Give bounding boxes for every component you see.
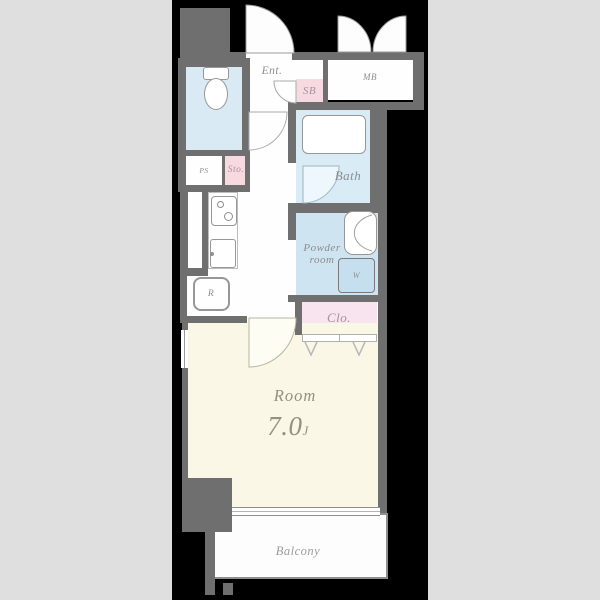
room-label: Room — [263, 386, 327, 406]
balcony-label: Balcony — [268, 543, 328, 559]
left-window — [181, 330, 188, 368]
closet-door-track — [302, 334, 377, 342]
stove-icon — [211, 196, 237, 226]
toilet-bowl-icon — [204, 78, 228, 110]
closet-label: Clo. — [315, 310, 363, 326]
bathtub-icon — [302, 115, 366, 154]
bath-label: Bath — [326, 168, 370, 184]
kitchen-sink-icon — [210, 239, 236, 268]
washbasin-icon — [344, 211, 377, 255]
refrigerator-label: R — [196, 287, 226, 301]
washer-label: W — [343, 268, 370, 282]
wall-pillar-top-left — [180, 8, 230, 60]
powder-room-label: Powder room — [298, 240, 346, 268]
floor-plan: Ent. SB MB PS Sto. R Bath Powder room W … — [0, 0, 600, 600]
room-size-label: 7.0J — [252, 410, 324, 442]
meter-box-label: MB — [352, 70, 388, 84]
entrance-threshold — [246, 52, 292, 60]
entrance-label: Ent. — [250, 63, 294, 79]
wall-pillar-bottom-left — [182, 478, 232, 532]
pipe-space-label: PS — [189, 163, 219, 177]
storage-label: Sto. — [224, 163, 248, 177]
balcony-window — [232, 507, 380, 516]
shoe-box-label: SB — [296, 82, 323, 99]
